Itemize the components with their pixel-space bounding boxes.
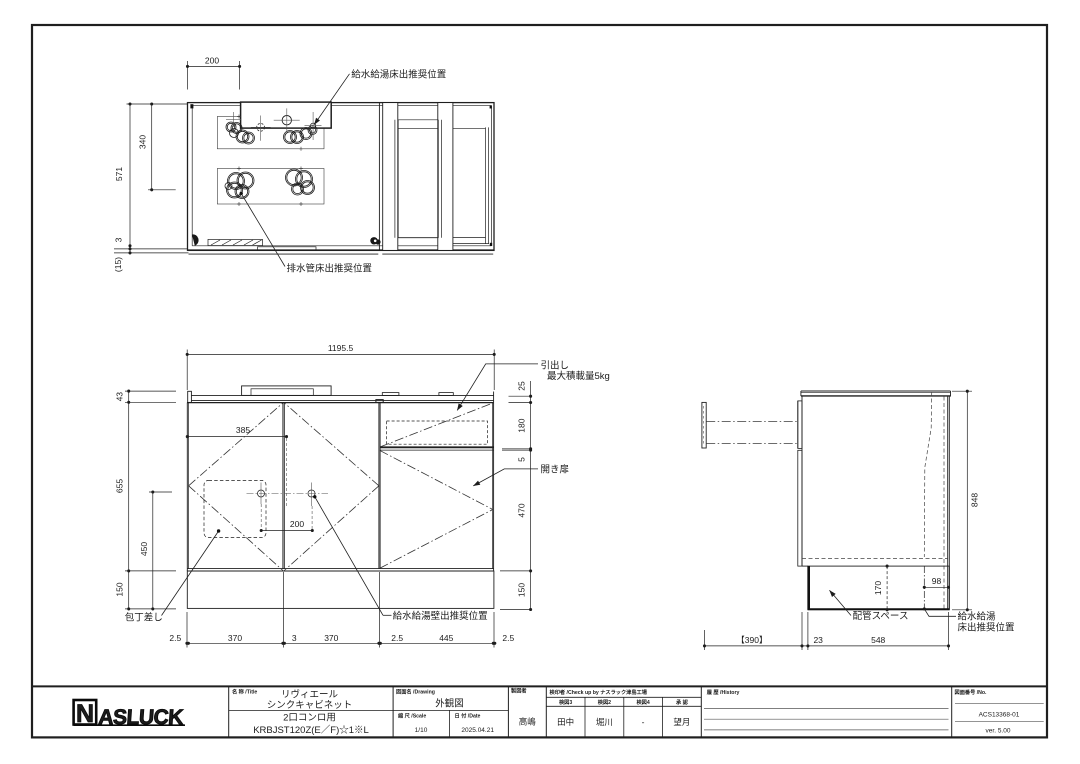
svg-text:5: 5 — [517, 457, 527, 462]
svg-text:370: 370 — [228, 633, 242, 643]
svg-text:検図4: 検図4 — [636, 698, 649, 706]
svg-text:図面名 /Drawing: 図面名 /Drawing — [396, 688, 435, 696]
svg-text:ver. 5.00: ver. 5.00 — [986, 728, 1011, 735]
svg-text:図面番号 /No.: 図面番号 /No. — [955, 688, 988, 696]
svg-text:縮 尺 /Scale: 縮 尺 /Scale — [398, 712, 426, 720]
svg-text:571: 571 — [114, 167, 124, 181]
svg-text:25: 25 — [517, 381, 527, 391]
svg-text:1/10: 1/10 — [415, 727, 428, 734]
svg-text:470: 470 — [517, 503, 527, 517]
svg-text:給水給湯: 給水給湯 — [958, 611, 997, 623]
svg-text:(15): (15) — [113, 257, 123, 272]
svg-text:340: 340 — [137, 135, 147, 149]
svg-text:1195.5: 1195.5 — [328, 343, 354, 353]
svg-text:引出し: 引出し — [541, 360, 570, 372]
svg-text:床出推奨位置: 床出推奨位置 — [958, 622, 1015, 634]
svg-text:180: 180 — [517, 418, 527, 432]
svg-text:200: 200 — [205, 56, 219, 66]
svg-text:包丁差し: 包丁差し — [125, 612, 163, 624]
svg-text:848: 848 — [970, 493, 980, 507]
svg-text:履 歴 /History: 履 歴 /History — [706, 688, 740, 696]
svg-text:製図者: 製図者 — [511, 687, 527, 695]
svg-text:田中: 田中 — [557, 717, 574, 727]
svg-text:445: 445 — [439, 633, 453, 643]
svg-text:高嶋: 高嶋 — [519, 717, 537, 727]
svg-text:【390】: 【390】 — [736, 635, 767, 645]
svg-text:2.5: 2.5 — [502, 633, 514, 643]
svg-text:開き扉: 開き扉 — [541, 463, 570, 475]
svg-text:配管スペース: 配管スペース — [853, 610, 909, 622]
svg-text:給水給湯壁出推奨位置: 給水給湯壁出推奨位置 — [393, 610, 488, 622]
svg-text:200: 200 — [290, 519, 304, 529]
svg-text:N: N — [76, 700, 94, 728]
svg-text:3: 3 — [114, 237, 124, 242]
svg-text:最大積載量5kg: 最大積載量5kg — [547, 370, 610, 382]
svg-text:23: 23 — [813, 635, 823, 645]
svg-text:2口コンロ用: 2口コンロ用 — [283, 713, 336, 724]
svg-text:検図3: 検図3 — [559, 698, 572, 706]
svg-text:排水管床出推奨位置: 排水管床出推奨位置 — [287, 263, 373, 275]
svg-text:170: 170 — [873, 581, 883, 595]
svg-text:2.5: 2.5 — [391, 633, 403, 643]
svg-text:655: 655 — [115, 479, 125, 493]
svg-text:43: 43 — [115, 392, 125, 402]
svg-text:承 認: 承 認 — [676, 698, 689, 706]
svg-text:370: 370 — [324, 633, 338, 643]
svg-text:シンクキャビネット: シンクキャビネット — [267, 700, 353, 711]
svg-text:98: 98 — [932, 576, 942, 586]
svg-text:150: 150 — [115, 582, 125, 596]
svg-text:450: 450 — [139, 542, 149, 556]
svg-text:2025.04.21: 2025.04.21 — [461, 727, 494, 734]
svg-text:名 称 /Title: 名 称 /Title — [232, 688, 257, 696]
svg-text:548: 548 — [871, 635, 885, 645]
svg-text:望月: 望月 — [673, 717, 690, 727]
svg-text:外観図: 外観図 — [435, 698, 464, 710]
svg-text:検図2: 検図2 — [598, 698, 611, 706]
svg-text:ACS13368-01: ACS13368-01 — [979, 712, 1020, 719]
svg-text:リヴィエール: リヴィエール — [281, 689, 339, 701]
svg-text:検印者 /Check up by ナスラック津島工場: 検印者 /Check up by ナスラック津島工場 — [550, 688, 648, 696]
svg-text:3: 3 — [292, 633, 297, 643]
svg-text:2.5: 2.5 — [169, 633, 181, 643]
svg-text:150: 150 — [517, 583, 527, 597]
svg-text:385: 385 — [236, 425, 250, 435]
svg-text:日 付 /Date: 日 付 /Date — [455, 712, 481, 720]
svg-text:-: - — [642, 717, 645, 727]
svg-text:堀川: 堀川 — [596, 717, 613, 727]
svg-text:KRBJST120Z(E／F)☆1※L: KRBJST120Z(E／F)☆1※L — [253, 725, 369, 736]
svg-text:給水給湯床出推奨位置: 給水給湯床出推奨位置 — [351, 69, 446, 81]
